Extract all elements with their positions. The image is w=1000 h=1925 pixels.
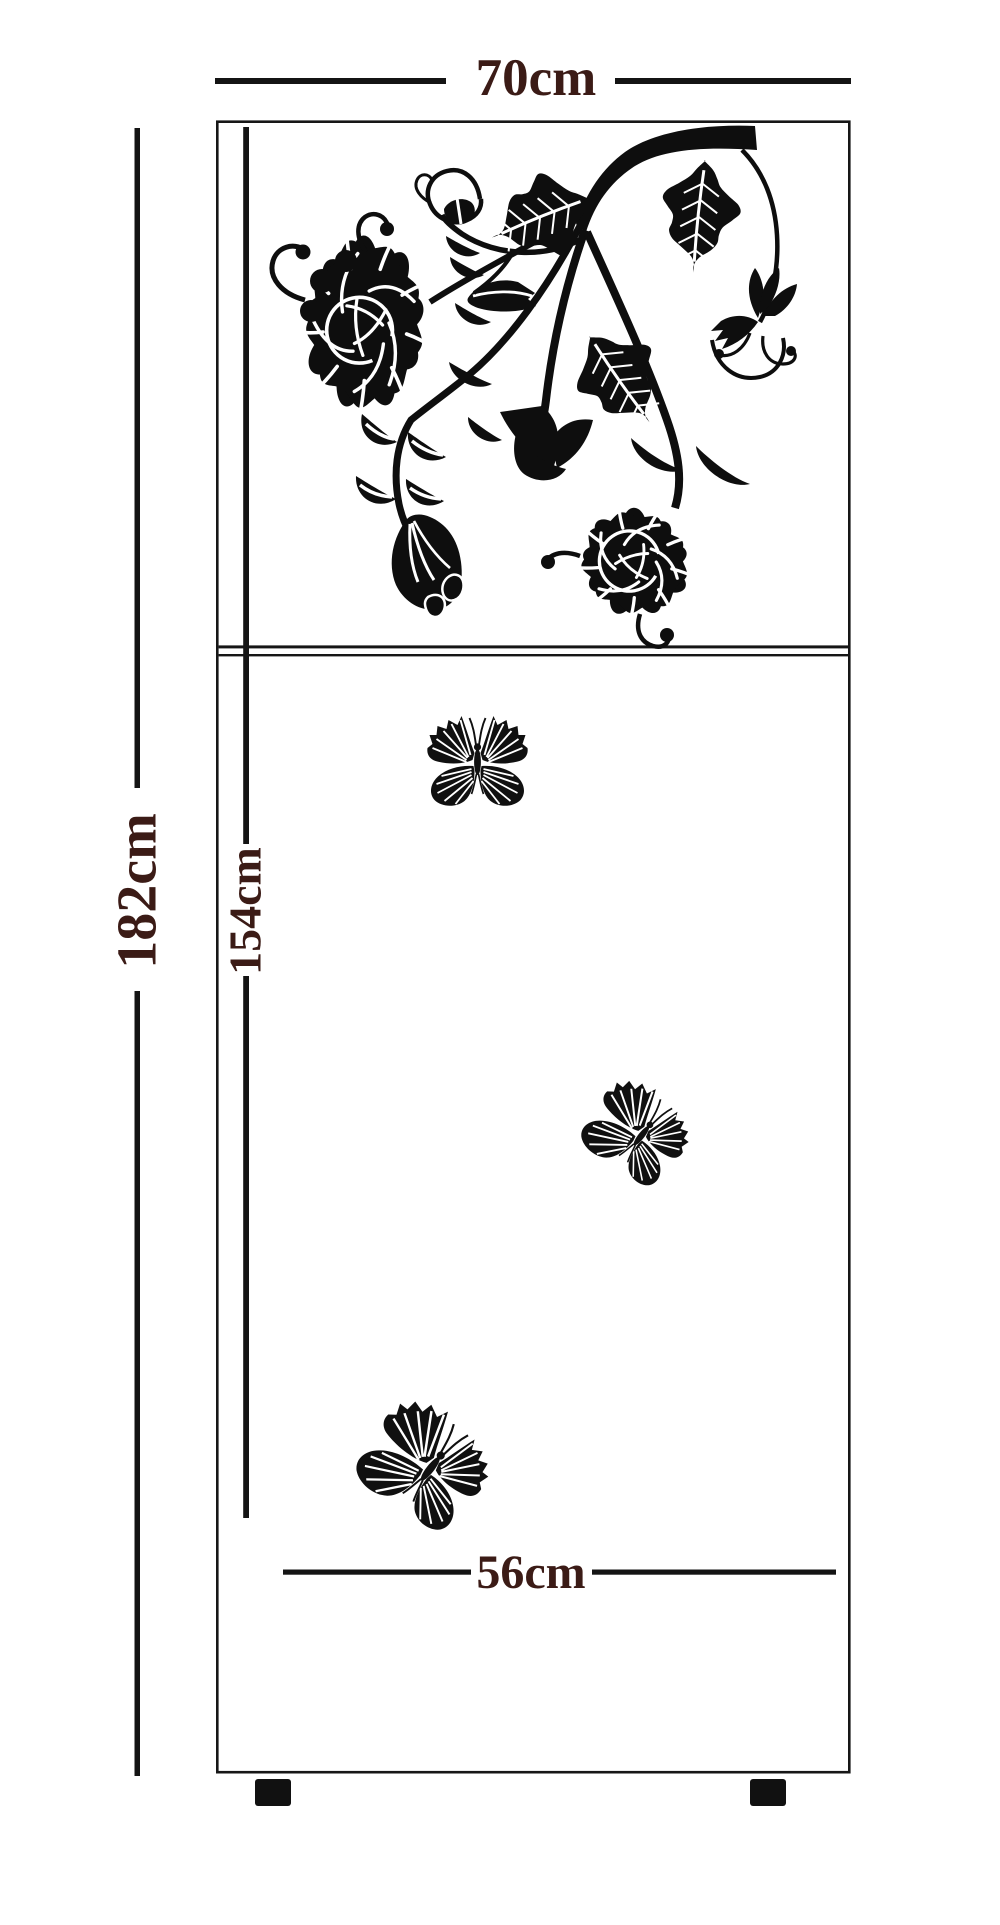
svg-text:56cm: 56cm [476,1546,585,1599]
svg-text:70cm: 70cm [476,49,597,107]
svg-text:154cm: 154cm [220,847,271,975]
svg-text:182cm: 182cm [107,813,169,969]
